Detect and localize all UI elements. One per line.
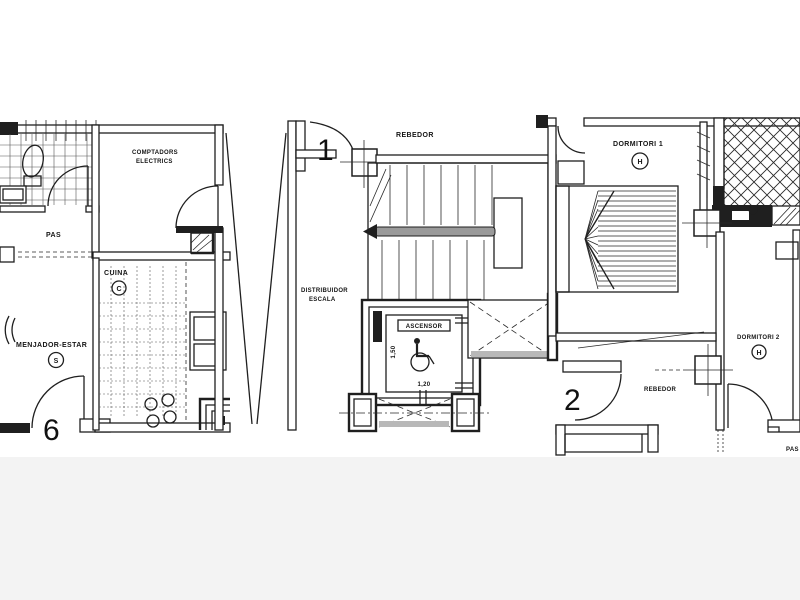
pas-label: PAS <box>46 232 61 239</box>
living-code: S <box>54 358 59 365</box>
wall-solid <box>536 115 548 128</box>
handrail <box>375 227 495 236</box>
wall-solid <box>0 122 18 135</box>
wall <box>556 425 565 455</box>
elevator-depth-dim: 1,50 <box>391 345 397 358</box>
wall <box>215 125 223 185</box>
bed <box>556 186 678 292</box>
door-number-6: 6 <box>43 414 60 447</box>
wall <box>556 333 716 341</box>
wall <box>793 230 800 430</box>
meters-room-label-1: COMPTADORS <box>132 150 178 156</box>
wall <box>376 155 556 163</box>
wall <box>95 423 230 432</box>
rebedor-label: REBEDOR <box>396 132 434 139</box>
door-number-2: 2 <box>564 384 581 417</box>
kitchen-label: CUINA <box>104 270 128 277</box>
wall-solid <box>0 423 30 433</box>
wall <box>288 121 296 430</box>
wall <box>92 125 99 258</box>
bedroom2-code: H <box>756 350 761 357</box>
elevator-width-dim: 1,20 <box>418 382 431 388</box>
vent-shaft <box>191 233 213 253</box>
wall <box>0 206 45 212</box>
elevator: ASCENSOR 1,20 1,50 <box>362 300 480 405</box>
kitchen-code: C <box>116 286 121 293</box>
wall <box>716 232 724 430</box>
rebedor2-label: REBEDOR <box>644 387 676 393</box>
landing-label-2: ESCALA <box>309 297 336 303</box>
wall-opening <box>732 211 749 220</box>
elevator-label: ASCENSOR <box>406 324 443 330</box>
pas2-label: PAS <box>786 447 799 453</box>
door-number-1: 1 <box>317 134 334 167</box>
landing-label-1: DISTRIBUIDOR <box>301 288 348 294</box>
wall <box>93 258 99 430</box>
wall-stub <box>296 121 305 171</box>
page-margin-band <box>0 457 800 600</box>
bedroom2-label: DORMITORI 2 <box>737 335 780 341</box>
wall <box>556 425 658 434</box>
patio-vent <box>468 294 557 360</box>
living-label: MENJADOR-ESTAR <box>16 342 87 349</box>
wall <box>215 228 223 430</box>
wall <box>6 125 223 133</box>
wall <box>548 126 556 336</box>
wall-stub <box>563 361 621 372</box>
wall <box>768 420 800 432</box>
meters-room-label-2: ELECTRICS <box>136 159 173 165</box>
hinge-dot <box>749 206 758 215</box>
elevator-door <box>373 311 382 342</box>
bedroom1-code: H <box>637 159 642 166</box>
bedroom1-label: DORMITORI 1 <box>613 141 663 148</box>
wall <box>714 118 724 188</box>
wall <box>648 425 658 452</box>
wall-solid <box>176 226 223 233</box>
nightstand <box>558 161 584 184</box>
wall-stub <box>0 247 14 262</box>
terrace-hatch <box>724 118 800 208</box>
floor-plan: PAS MENJADOR-ESTAR S 6 CUINA C <box>0 0 800 600</box>
